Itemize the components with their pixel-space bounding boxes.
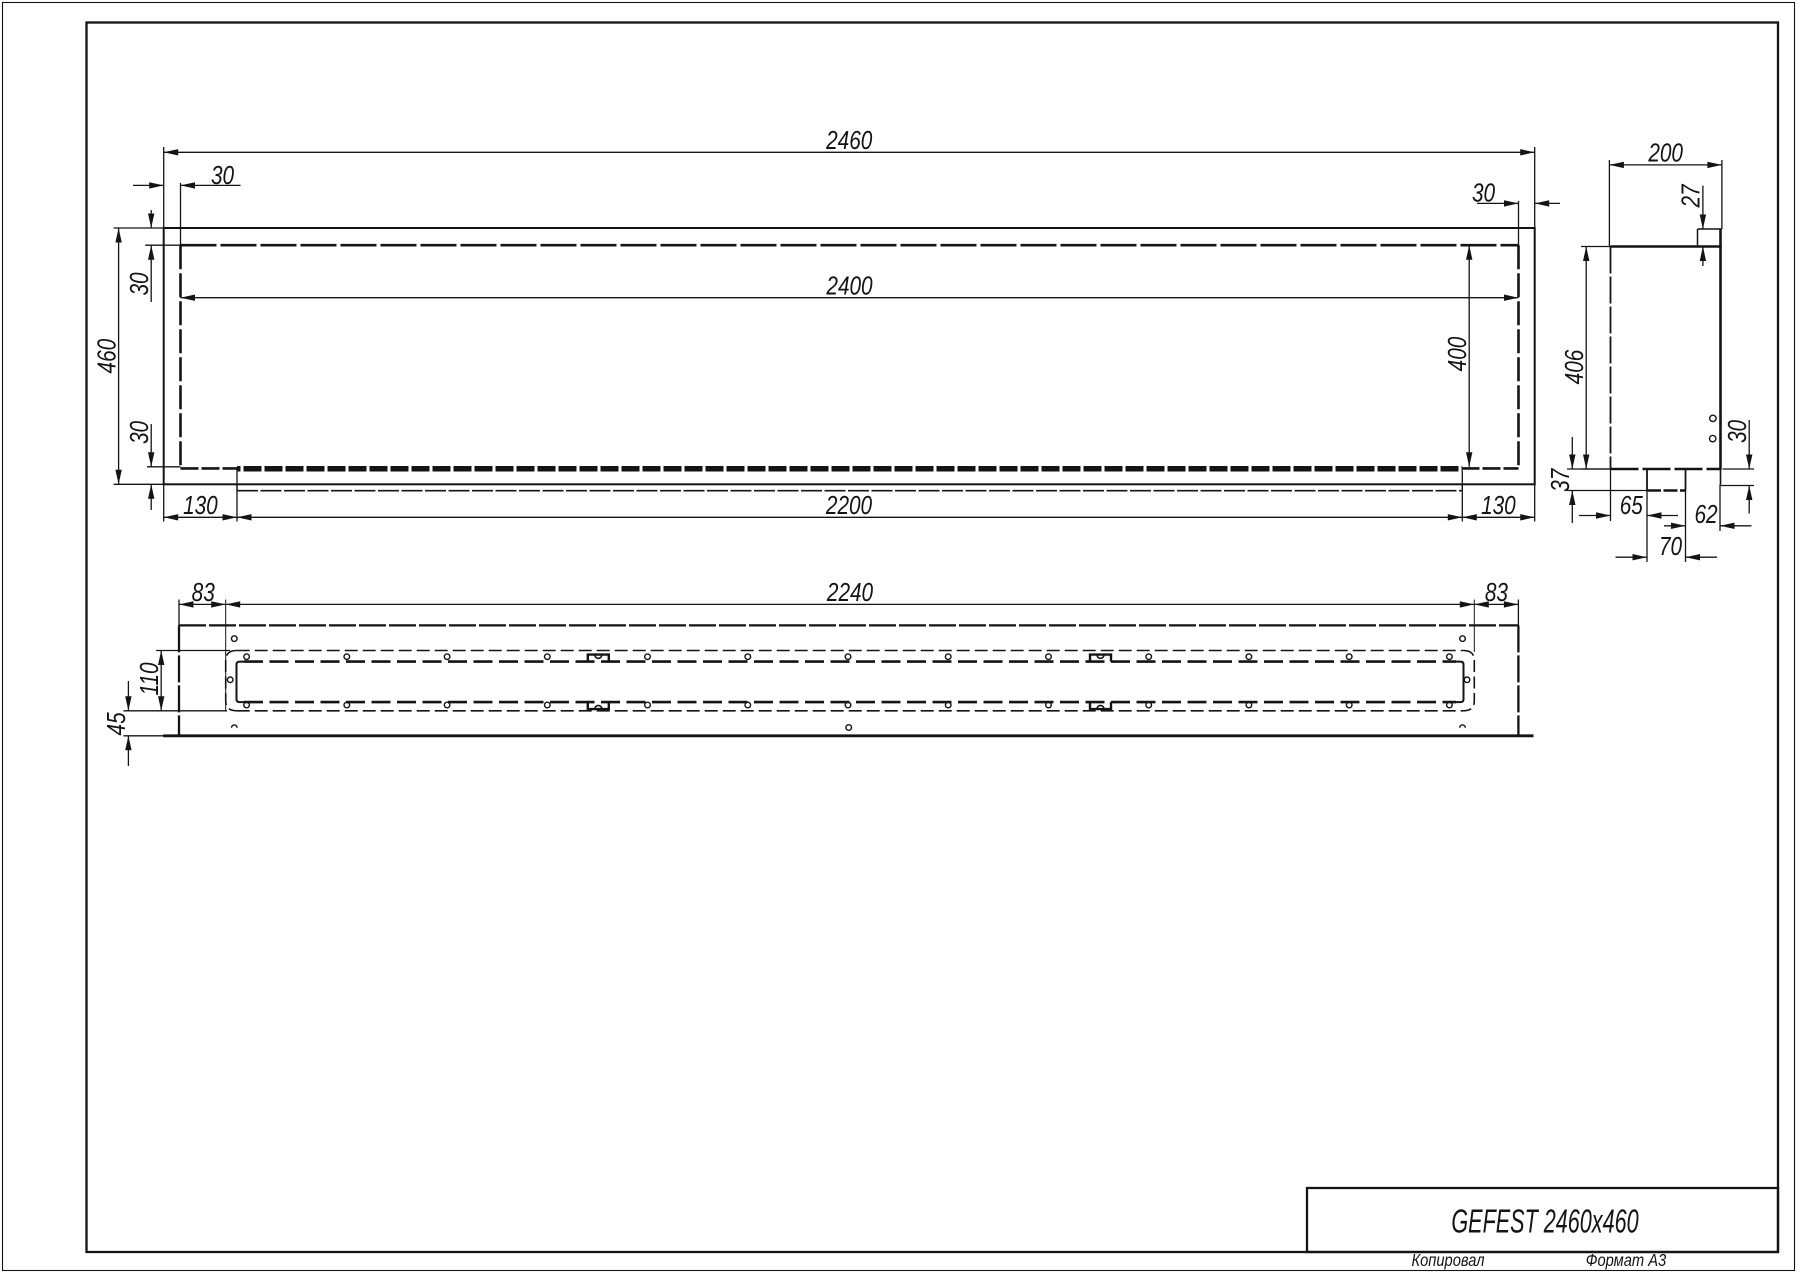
svg-text:30: 30 [125,421,154,444]
svg-text:Копировал: Копировал [1411,1251,1484,1270]
svg-text:110: 110 [135,662,164,695]
svg-text:2400: 2400 [825,271,872,300]
svg-text:2200: 2200 [825,491,872,520]
svg-text:83: 83 [1485,578,1508,607]
svg-text:30: 30 [125,272,154,295]
svg-text:30: 30 [211,161,234,190]
svg-text:Формат А3: Формат А3 [1586,1251,1666,1270]
svg-text:65: 65 [1620,491,1643,520]
svg-text:GEFEST 2460x460: GEFEST 2460x460 [1451,1201,1639,1239]
svg-text:37: 37 [1546,468,1575,492]
svg-text:30: 30 [1723,420,1752,443]
svg-text:30: 30 [1472,178,1495,207]
svg-text:130: 130 [1481,491,1516,520]
svg-text:83: 83 [192,578,215,607]
svg-text:27: 27 [1677,183,1706,208]
svg-text:70: 70 [1659,532,1682,561]
svg-text:62: 62 [1694,500,1717,529]
svg-text:400: 400 [1443,337,1472,372]
svg-text:200: 200 [1647,139,1683,168]
svg-text:130: 130 [183,491,218,520]
svg-text:45: 45 [102,712,131,735]
svg-text:2240: 2240 [826,578,873,607]
svg-text:2460: 2460 [825,126,872,155]
svg-text:460: 460 [92,339,121,374]
svg-text:406: 406 [1560,350,1589,385]
